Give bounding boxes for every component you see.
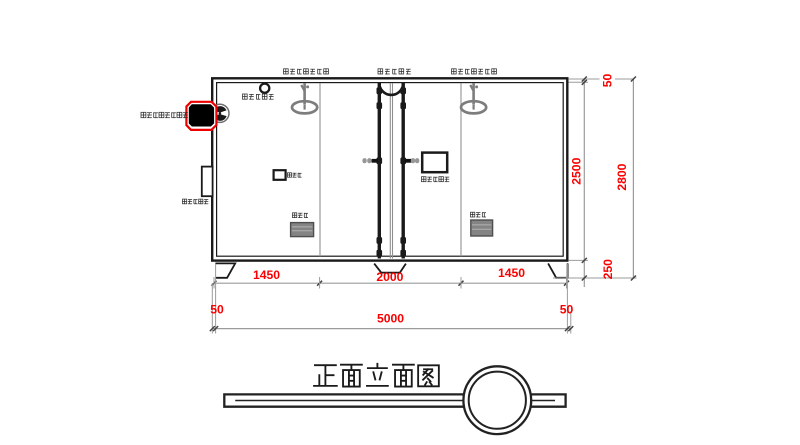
svg-text:2800: 2800	[615, 163, 629, 190]
svg-text:5000: 5000	[377, 312, 404, 326]
svg-text:50: 50	[560, 303, 574, 317]
svg-text:1450: 1450	[498, 266, 525, 280]
svg-text:250: 250	[601, 259, 615, 280]
svg-text:2500: 2500	[569, 157, 583, 184]
svg-text:2000: 2000	[376, 270, 403, 284]
svg-text:50: 50	[210, 303, 224, 317]
svg-text:1450: 1450	[253, 268, 280, 282]
svg-text:50: 50	[601, 74, 615, 88]
